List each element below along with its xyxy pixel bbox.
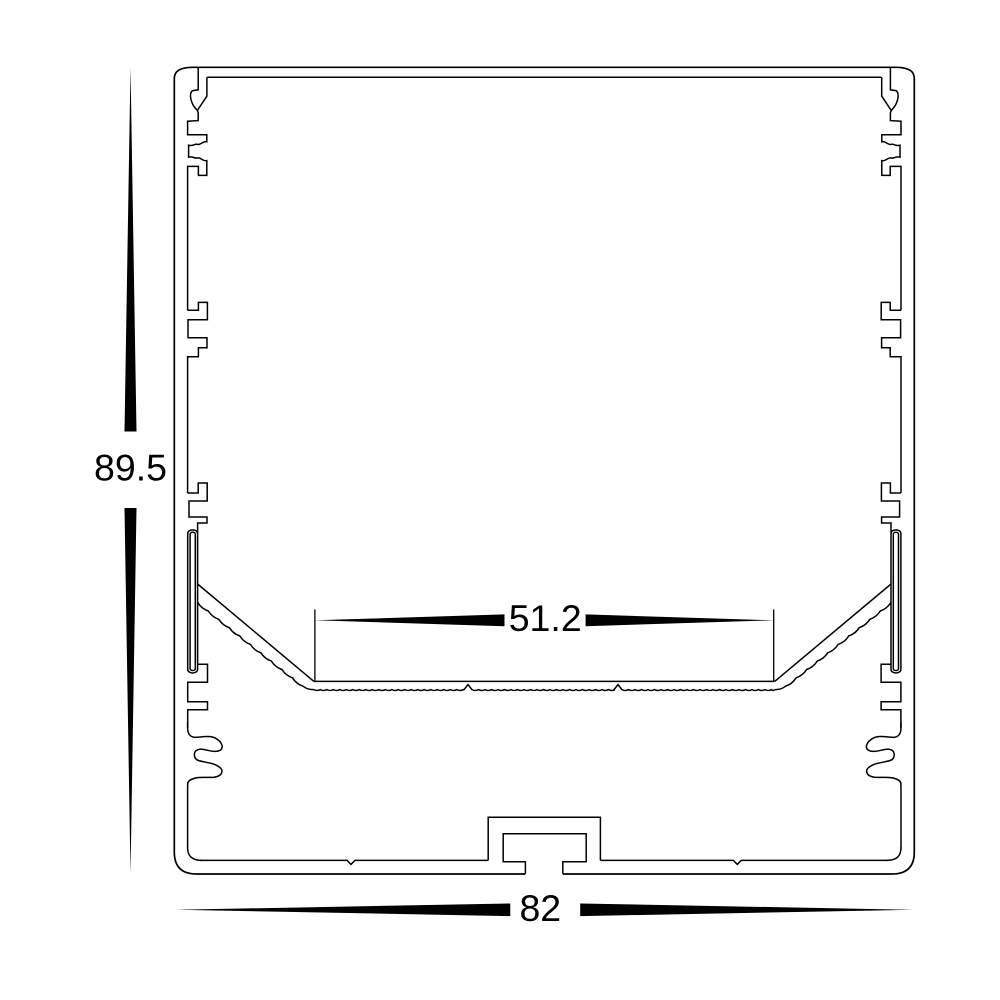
svg-text:51.2: 51.2 <box>509 597 582 639</box>
svg-text:89.5: 89.5 <box>94 447 167 489</box>
svg-text:82: 82 <box>519 887 561 929</box>
